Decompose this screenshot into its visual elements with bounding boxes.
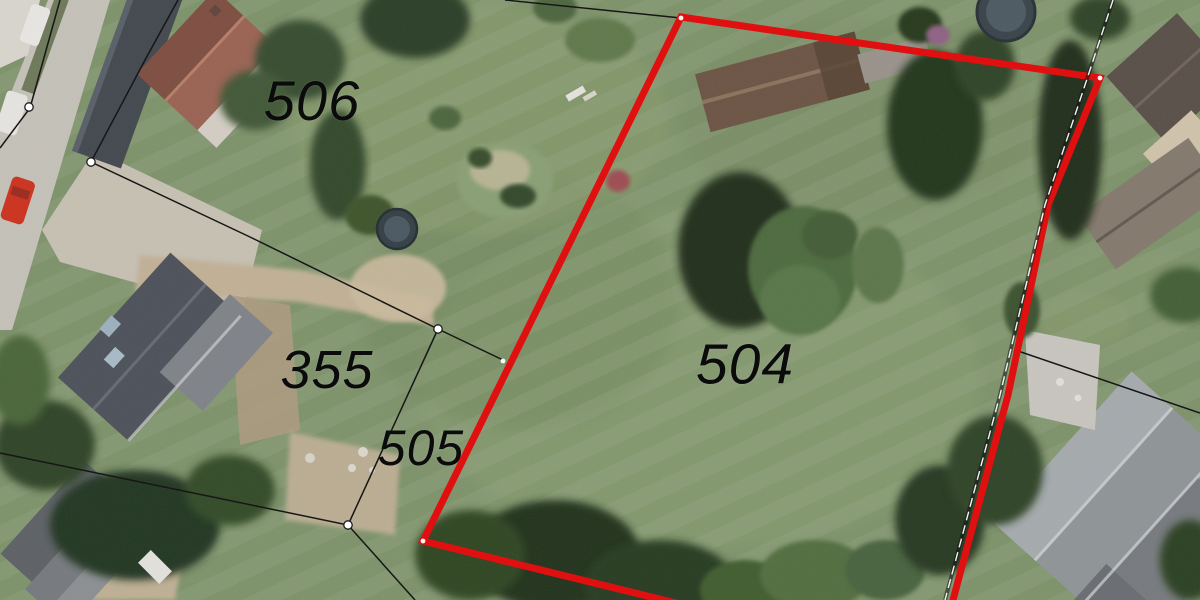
vertex-dot-3 <box>501 359 506 364</box>
boundary-line-4 <box>0 453 415 600</box>
survey-marker-3 <box>344 521 352 529</box>
parcel-label-504: 504 <box>696 337 794 394</box>
highlight-polygon-504 <box>423 17 1100 600</box>
vertex-dot-0 <box>679 16 684 21</box>
boundary-line-1 <box>91 0 178 162</box>
parcel-label-355: 355 <box>280 343 373 397</box>
vertex-dot-2 <box>421 539 426 544</box>
cadastral-overlay <box>0 0 1200 600</box>
survey-marker-0 <box>25 103 33 111</box>
boundary-line-5 <box>505 0 681 18</box>
vertex-dot-1 <box>1098 76 1103 81</box>
boundary-line-6 <box>1015 350 1200 413</box>
survey-marker-1 <box>87 158 95 166</box>
parcel-label-506: 506 <box>264 73 360 129</box>
parcel-label-505: 505 <box>378 423 464 473</box>
survey-marker-2 <box>434 325 442 333</box>
map-viewport[interactable]: 506 355 505 504 <box>0 0 1200 600</box>
boundary-line-0 <box>0 0 60 148</box>
